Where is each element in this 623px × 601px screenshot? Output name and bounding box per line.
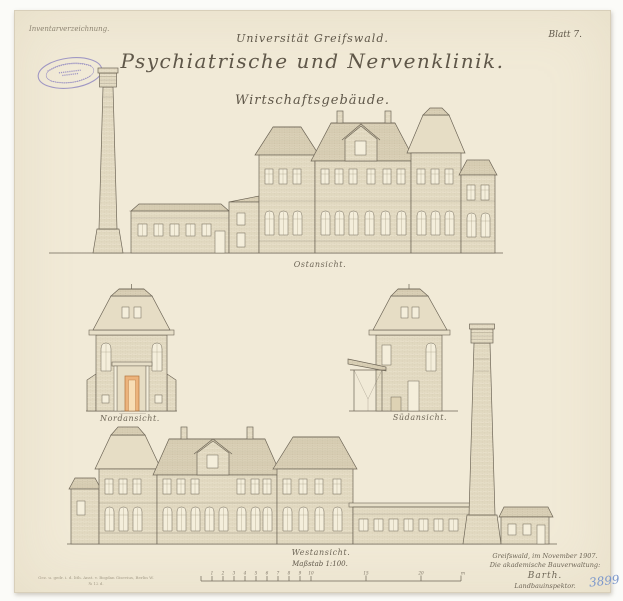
scale-tick: 1 [211,571,214,576]
elevation-west-label: Westansicht. [261,548,381,557]
service-wing [129,204,231,253]
scanned-plan-page: { "meta": { "inventory_note": "Inventarv… [0,0,623,601]
main-building-west [95,427,357,544]
signature-office: Die akademische Bauverwaltung: [470,561,620,570]
scale-tick: 4 [243,571,247,576]
scale-tick: 5 [255,571,258,576]
shed-right [499,507,553,544]
scale-tick: 3 [233,571,236,576]
scale-tick: 2 [221,571,225,576]
chimney-left [93,68,123,253]
scale-bar: 1 2 3 4 5 6 7 8 9 10 15 20 m [197,569,467,587]
signature-place-date: Greifswald, im November 1907. [470,552,620,561]
scale-tick: 15 [363,571,369,576]
printer-note-line2: № 12 d. [31,581,161,587]
scale-unit: m [461,571,465,576]
scale-tick: 10 [308,571,314,576]
printer-note: Gez. u. gedr. i. d. lith. Anst. v. Bogda… [31,575,161,587]
scale-label: Maßstab 1:100. [265,560,375,568]
sheet-number: Blatt 7. [548,30,582,40]
elevation-east-label: Ostansicht. [260,260,380,269]
elevation-east-drawing [43,63,513,265]
scale-tick: 20 [417,571,424,576]
elevation-west-drawing [61,319,566,551]
scale-tick: 6 [266,571,269,576]
scale-tick: 9 [299,571,302,576]
university-title: Universität Greifswald. [15,32,610,45]
scale-tick: 8 [288,571,291,576]
drawing-sheet: Inventarverzeichnung. Universität Greifs… [14,10,611,593]
main-building [255,108,497,253]
scale-tick: 7 [277,571,280,576]
